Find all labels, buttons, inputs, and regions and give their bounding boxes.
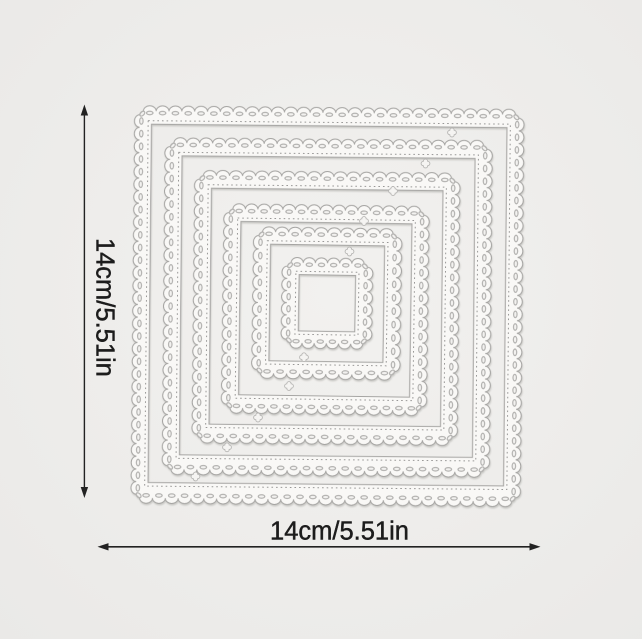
svg-text:14cm/5.51in: 14cm/5.51in <box>270 518 409 546</box>
svg-text:14cm/5.51in: 14cm/5.51in <box>91 238 119 377</box>
